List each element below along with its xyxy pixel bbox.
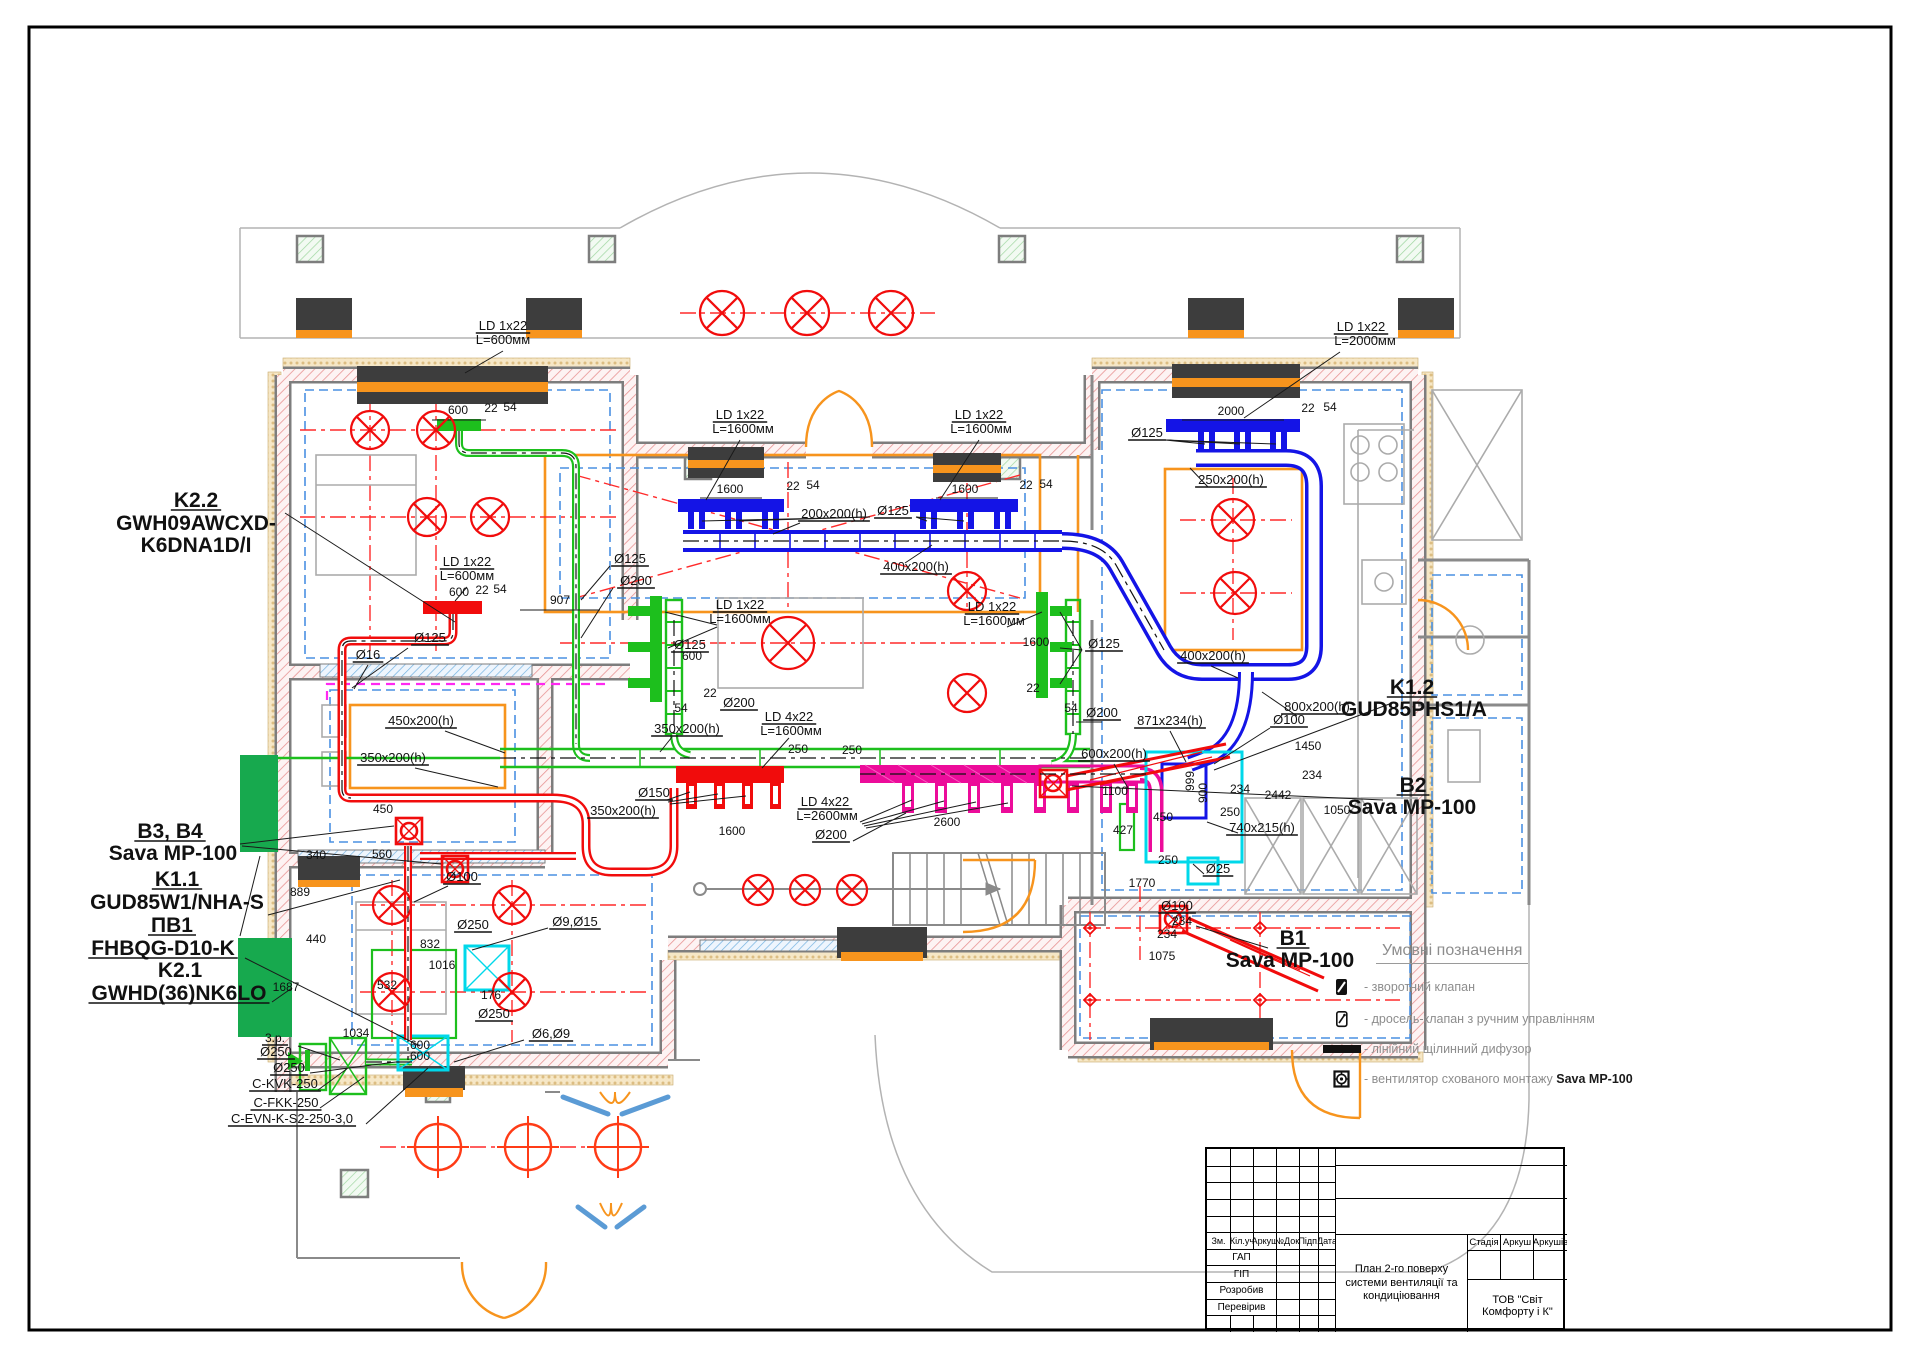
dim-label: 832: [420, 937, 440, 951]
roof-vents: [296, 298, 1454, 338]
dim-label: 427: [1113, 823, 1133, 837]
dim-label: 234: [1172, 914, 1192, 928]
dim-label: 450: [1153, 810, 1173, 824]
orange-zones: [350, 455, 1302, 788]
dim-label: 1687: [273, 980, 300, 994]
dim-label: 440: [306, 932, 326, 946]
dim-label: L=1600мм: [760, 723, 822, 738]
dim-label: 54: [1039, 477, 1053, 491]
dim-label: 1600: [1023, 635, 1050, 649]
dim-label: 1600: [719, 824, 746, 838]
legend-item: - вентилятор схованого монтажу Sava MP-1…: [1320, 1070, 1740, 1088]
dim-label: LD 1x22: [968, 599, 1016, 614]
dim-label: 1050: [1324, 803, 1351, 817]
dim-label: 600x200(h): [1081, 746, 1147, 761]
equipment-tag: B3, B4: [137, 820, 203, 843]
dim-label: 450x200(h): [388, 713, 454, 728]
dim-label: 250x200(h): [1198, 472, 1264, 487]
equipment-tag: B2: [1400, 774, 1427, 797]
dim-label: L=1600мм: [963, 613, 1025, 628]
dim-label: 350x200(h): [360, 750, 426, 765]
dim-label: Ø250: [457, 917, 489, 932]
dim-label: Ø16: [356, 647, 381, 662]
dim-label: 740x215(h): [1229, 820, 1295, 835]
dim-label: LD 1x22: [1337, 319, 1385, 334]
dim-label: Ø6,Ø9: [532, 1026, 570, 1041]
equipment-tag: Sava MP-100: [109, 842, 237, 865]
dim-label: Ø100: [446, 869, 478, 884]
legend-item-label: - вентилятор схованого монтажу Sava MP-1…: [1364, 1072, 1633, 1086]
equipment-tag: FHBQG-D10-K: [91, 937, 235, 960]
dim-label: C-FKK-250: [253, 1095, 318, 1110]
exhaust-duct-magenta: [860, 765, 1156, 852]
dim-label: Ø150: [638, 785, 670, 800]
dim-label: LD 1x22: [443, 554, 491, 569]
dim-label: Ø125: [614, 551, 646, 566]
dim-label: 234: [1157, 927, 1177, 941]
tb-right-header: Аркушів: [1533, 1234, 1567, 1250]
tb-column-header: Зм.: [1207, 1232, 1230, 1249]
porch-windows: [563, 1097, 668, 1227]
equipment-tag: K2.1: [158, 959, 203, 982]
equipment-tag: B1: [1280, 927, 1307, 950]
dim-label: LD 1x22: [955, 407, 1003, 422]
spot-fixture-icon: [407, 1116, 469, 1178]
dim-label: Ø250: [260, 1044, 292, 1059]
dim-label: 234: [1302, 768, 1322, 782]
dim-label: 600: [448, 403, 468, 417]
equipment-tag: GUD85W1/NHA-S: [90, 891, 264, 914]
dim-label: Ø125: [1131, 425, 1163, 440]
equipment-tag: GWHD(36)NK6LO: [91, 982, 266, 1005]
light-fixture-icon: [700, 291, 744, 335]
dim-label: 234: [1230, 782, 1250, 796]
dim-label: 2000: [1218, 404, 1245, 418]
dim-label: 400x200(h): [1180, 648, 1246, 663]
dim-label: LD 1x22: [479, 318, 527, 333]
company-name: ТОВ "Світ Комфорту і К": [1467, 1279, 1567, 1332]
dim-label: 600: [449, 585, 469, 599]
dim-label: 200x200(h): [801, 506, 867, 521]
tb-row-label: Перевірив: [1207, 1299, 1276, 1316]
tb-right-header: Аркуш: [1500, 1234, 1533, 1250]
dim-label: 176: [481, 988, 501, 1002]
dim-label: 889: [290, 885, 310, 899]
dim-label: 1100: [1102, 784, 1128, 798]
dim-label: Ø250: [478, 1006, 510, 1021]
floor-plan-canvas: K2.2GWH09AWCXD-K6DNA1D/IB3, B4Sava MP-10…: [0, 0, 1920, 1357]
dim-label: Ø25: [1206, 861, 1231, 876]
dim-label: Ø200: [815, 827, 847, 842]
dim-label: L=600мм: [440, 568, 494, 583]
dim-label: Ø125: [414, 630, 446, 645]
dim-label: 800x200(h): [1284, 699, 1350, 714]
dim-label: Ø125: [1088, 636, 1120, 651]
dim-label: 560: [372, 847, 392, 861]
equipment-tag: ПВ1: [151, 914, 193, 937]
dim-label: C-EVN-K-S2-250-3,0: [231, 1111, 353, 1126]
dim-label: 2600: [934, 815, 961, 829]
equipment-tag: GWH09AWCXD-: [116, 512, 276, 535]
dim-label: 871x234(h): [1137, 713, 1203, 728]
dim-label: 600: [410, 1049, 430, 1063]
dim-label: Ø250: [273, 1060, 305, 1075]
equipment-tag: Sava MP-100: [1348, 796, 1476, 819]
dim-label: 350x200(h): [590, 803, 656, 818]
tb-row-label: Розробив: [1207, 1282, 1276, 1299]
dim-label: Ø125: [674, 637, 706, 652]
concealed-fan-icon: [1320, 1070, 1364, 1088]
dim-label: 54: [1323, 400, 1337, 414]
dim-label: 250: [1158, 853, 1178, 867]
dim-label: 450: [373, 802, 393, 816]
dim-label: L=2600мм: [796, 808, 858, 823]
tb-column-header: Аркуш: [1253, 1232, 1276, 1249]
dim-label: 54: [503, 400, 517, 414]
dim-label: LD 1x22: [716, 597, 764, 612]
dim-label: 1770: [1129, 876, 1156, 890]
dim-label: 54: [674, 701, 688, 715]
drawing-sheet: { "colors":{"red":"#f10c0c","green":"#1d…: [0, 0, 1920, 1357]
dim-label: 3.р.: [265, 1031, 285, 1045]
dim-label: 22: [786, 479, 800, 493]
dim-label: 1034: [343, 1026, 370, 1040]
dim-label: 54: [1064, 701, 1078, 715]
dim-label: 22: [703, 686, 717, 700]
legend-item: - зворотний клапан: [1320, 978, 1740, 996]
dim-label: Ø100: [1161, 898, 1193, 913]
tb-column-header: Дата: [1318, 1232, 1335, 1249]
title-block: Зм.Кіл.учАркуш№Док.Підп.ДатаГАПГІПРозроб…: [1205, 1147, 1565, 1330]
dim-label: 54: [806, 478, 820, 492]
dim-label: 350x200(h): [654, 721, 720, 736]
unit-pv1: [240, 755, 278, 852]
dim-label: L=1600мм: [709, 611, 771, 626]
legend-item-label: - лінійний щілинний дифузор: [1364, 1042, 1531, 1056]
dim-label: Ø200: [723, 695, 755, 710]
equipment-tag: K2.2: [174, 489, 218, 512]
tb-column-header: Кіл.уч: [1230, 1232, 1253, 1249]
tb-right-header: Стадія: [1467, 1234, 1500, 1250]
dim-label: Ø9,Ø15: [552, 914, 598, 929]
dim-label: C-KVK-250: [252, 1076, 318, 1091]
dim-label: 900: [1196, 783, 1210, 803]
dim-label: 1450: [1295, 739, 1322, 753]
dim-label: 1600: [952, 482, 979, 496]
dim-label: 1016: [429, 958, 456, 972]
dim-label: 22: [1026, 681, 1040, 695]
dim-label: 340: [306, 848, 326, 862]
legend-title: Умовні позначення: [1376, 942, 1528, 964]
spot-fixture-icon: [497, 1116, 559, 1178]
legend-item-label: - дросель-клапан з ручним управлінням: [1364, 1012, 1595, 1026]
tb-column-header: Підп.: [1299, 1232, 1318, 1249]
legend: Умовні позначення - зворотний клапан - д…: [1320, 942, 1740, 1088]
legend-item: - дросель-клапан з ручним управлінням: [1320, 1010, 1740, 1028]
equipment-tag: K6DNA1D/I: [141, 534, 252, 557]
dim-label: Ø200: [620, 573, 652, 588]
dim-label: 22: [484, 401, 498, 415]
equipment-tag: K1.1: [155, 868, 200, 891]
dim-label: 250: [788, 742, 808, 756]
dim-label: L=600мм: [476, 332, 530, 347]
dim-label: LD 4x22: [801, 794, 849, 809]
throttle-valve-icon: [1320, 1010, 1364, 1028]
drawing-title: План 2-го поверху системи вентиляції та …: [1335, 1234, 1467, 1332]
magenta-partition-line: [327, 684, 608, 700]
check-valve-icon: [1320, 978, 1364, 996]
legend-item: - лінійний щілинний дифузор: [1320, 1042, 1740, 1056]
dim-label: 400x200(h): [883, 559, 949, 574]
dim-label: 22: [1019, 478, 1033, 492]
dim-label: 907: [550, 593, 570, 607]
legend-item-label: - зворотний клапан: [1364, 980, 1475, 994]
tb-row-label: ГІП: [1207, 1265, 1276, 1282]
dim-label: 54: [493, 582, 507, 596]
dim-label: 22: [475, 583, 489, 597]
spot-fixture-icon: [587, 1116, 649, 1178]
dim-label: 532: [377, 978, 397, 992]
dim-label: 1075: [1149, 949, 1176, 963]
dim-label: 999: [1183, 771, 1197, 791]
dim-label: 2442: [1265, 788, 1292, 802]
dim-label: Ø125: [877, 503, 909, 518]
dim-label: LD 1x22: [716, 407, 764, 422]
equipment-tag: GUD85PHS1/A: [1341, 698, 1487, 721]
plan-labels: K2.2GWH09AWCXD-K6DNA1D/IB3, B4Sava MP-10…: [88, 318, 1487, 1126]
linear-diffuser-icon: [1320, 1042, 1364, 1056]
dim-label: L=1600мм: [950, 421, 1012, 436]
tb-row-label: ГАП: [1207, 1249, 1276, 1266]
dim-label: 250: [1220, 805, 1240, 819]
dim-label: LD 4x22: [765, 709, 813, 724]
tb-column-header: №Док.: [1276, 1232, 1299, 1249]
dim-label: L=2000мм: [1334, 333, 1396, 348]
equipment-tag: K1.2: [1390, 676, 1434, 699]
dim-label: L=1600мм: [712, 421, 774, 436]
dim-label: 22: [1301, 401, 1315, 415]
light-fixture-icon: [948, 674, 986, 712]
dim-label: Ø200: [1086, 705, 1118, 720]
dim-label: 250: [842, 743, 862, 757]
dim-label: 1600: [717, 482, 744, 496]
